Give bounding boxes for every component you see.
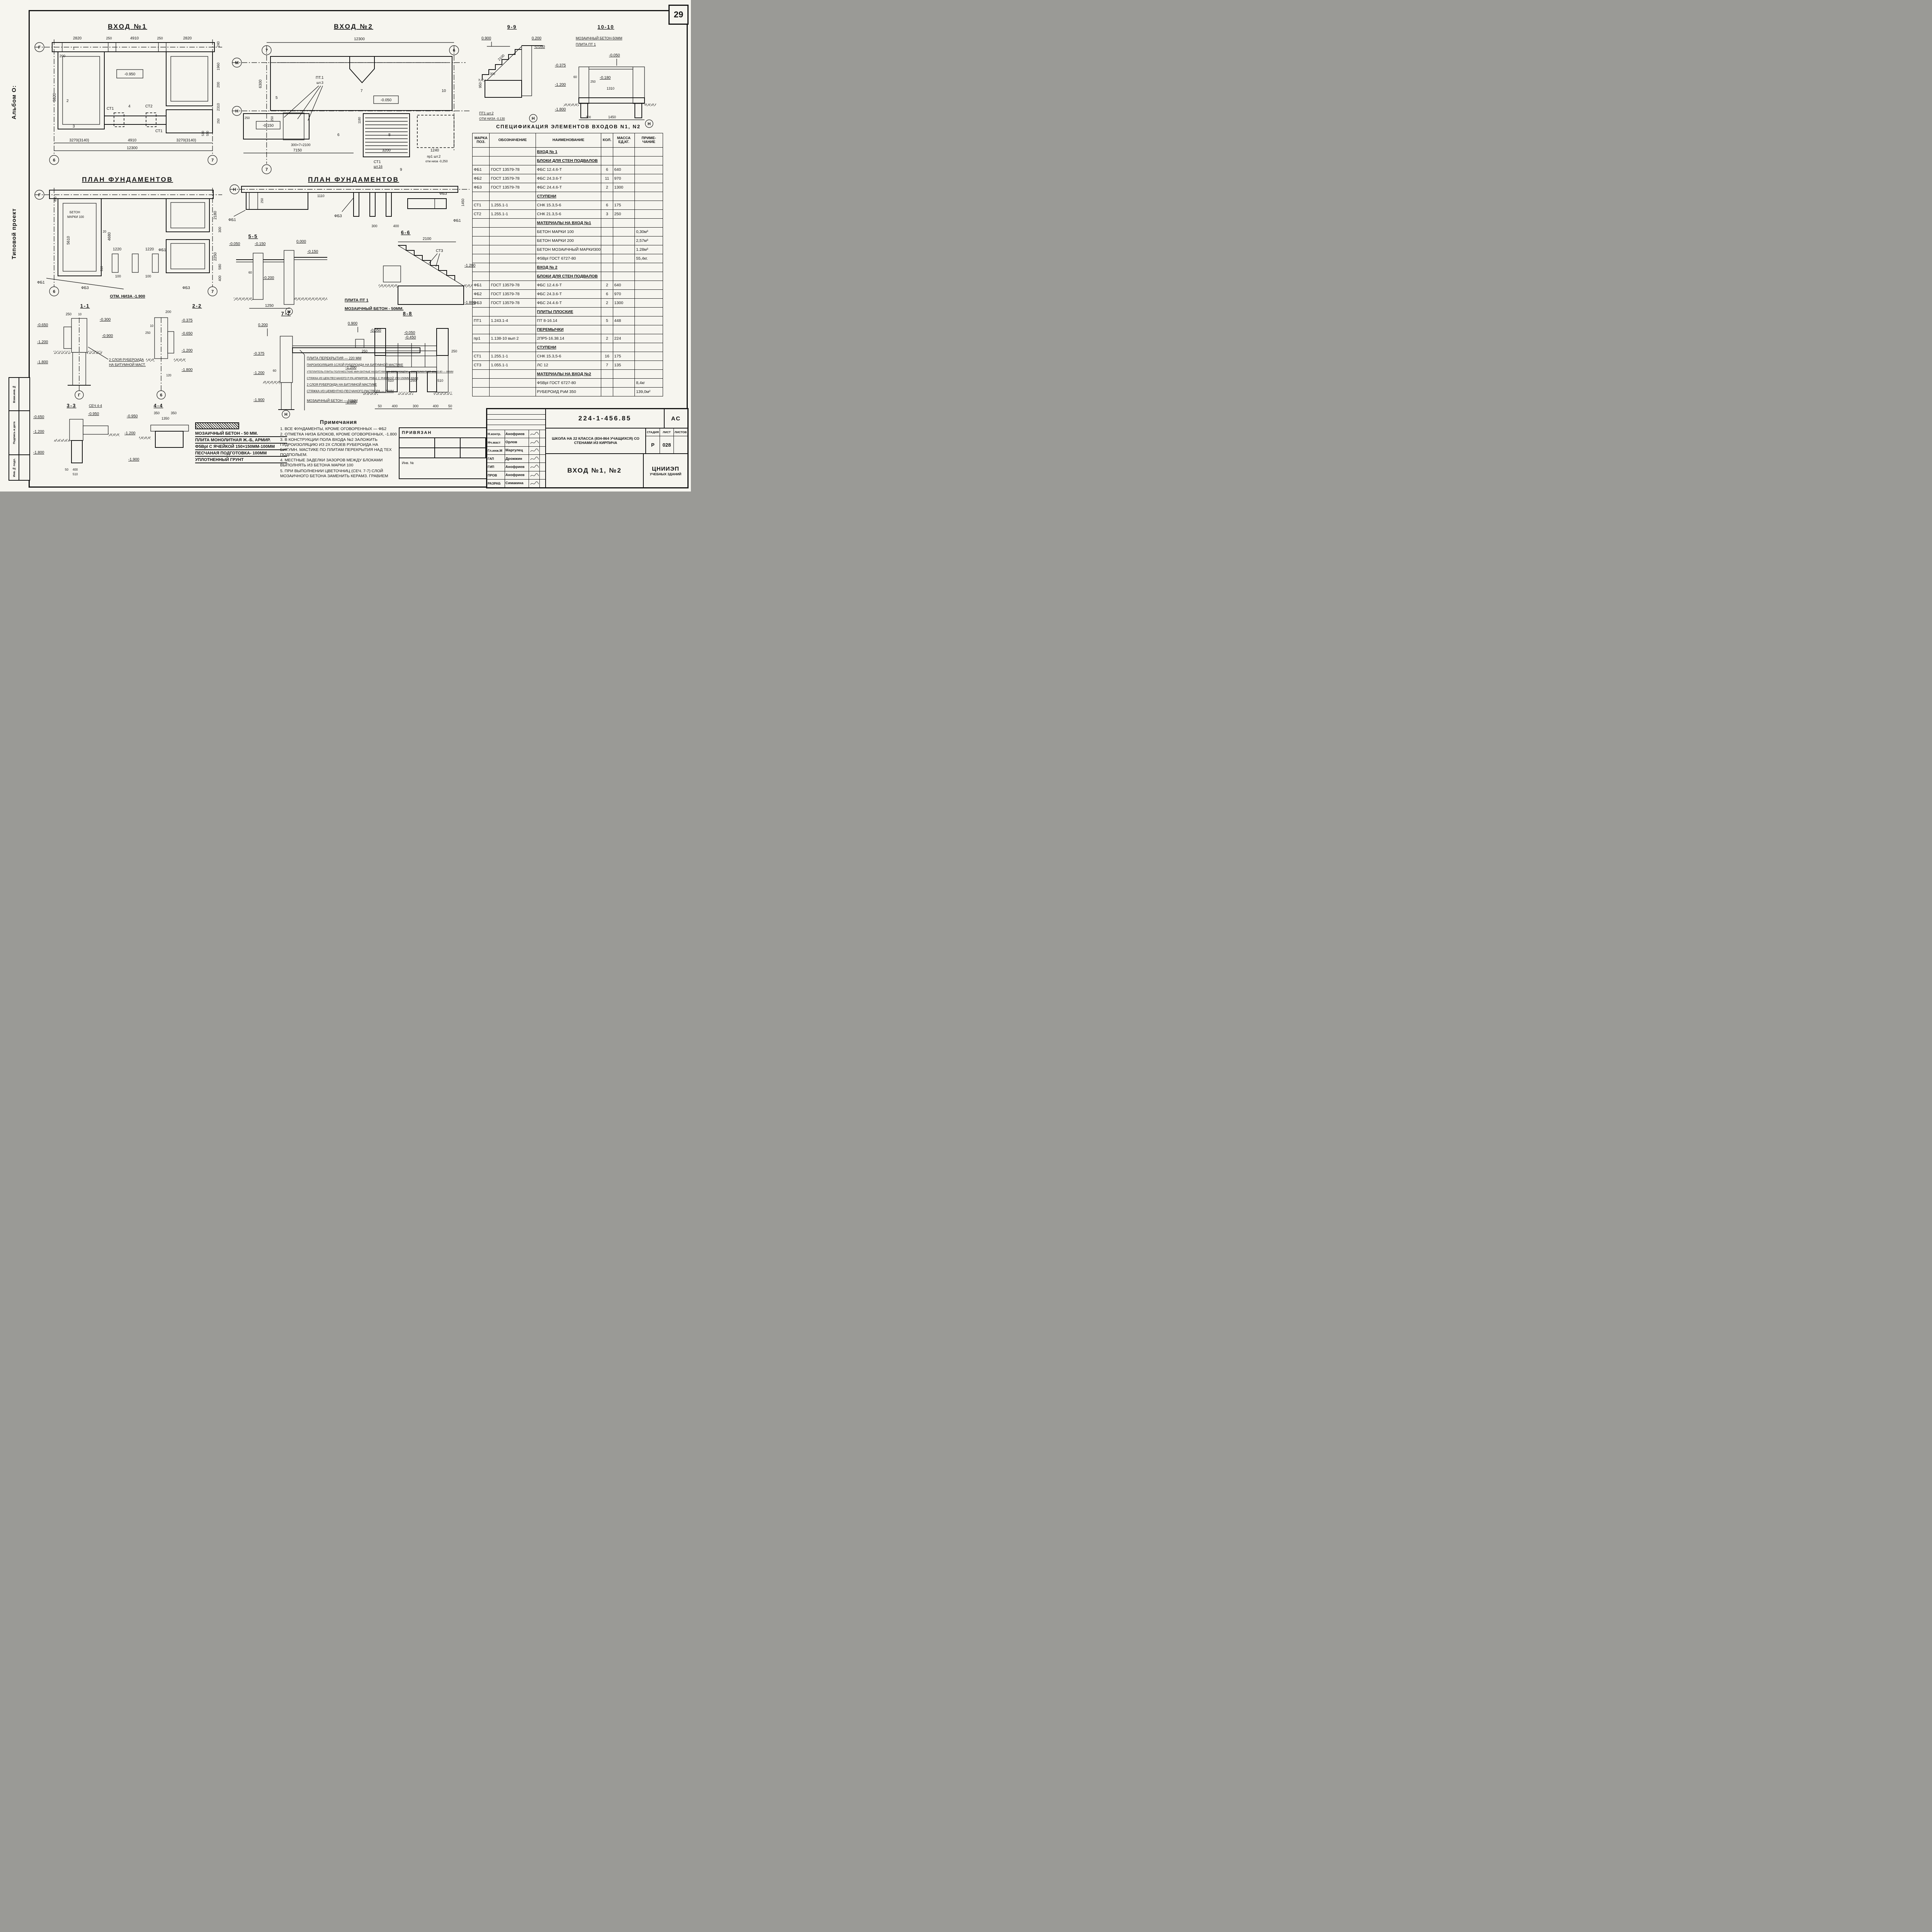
dim-label: 250 [410, 379, 416, 383]
dim-label: 200 [216, 82, 220, 88]
axis-bubble-6: 6 [160, 393, 162, 398]
dim-label: 510 [437, 379, 443, 383]
dim-label: 580 [218, 264, 222, 270]
level-label: -0.050 [404, 331, 415, 335]
level-label: -1.200 [555, 83, 566, 87]
signature-row: ГИПАнофриев [487, 463, 545, 471]
dim-label: 50 [378, 404, 382, 408]
table-row: СТ31.055.1-1ЛС 127135 [473, 361, 663, 370]
dim-label: 400 [433, 404, 439, 408]
sheets-header: ЛИСТОВ [674, 429, 687, 436]
level-label: -1.900 [128, 457, 139, 462]
table-row: МАТЕРИАЛЫ НА ВХОД №2 [473, 370, 663, 379]
dim-label: 300 [586, 116, 591, 119]
dim-label: 6300 [259, 79, 263, 88]
dim-label: 510 [100, 266, 104, 271]
mark-pr1: пр1 шт.2 [427, 155, 440, 158]
level-label: -0.150 [263, 124, 274, 128]
note-item: 5. ПРИ ВЫПОЛНЕНИИ ЦВЕТОЧНИЦ (СЕЧ. 7-7) С… [280, 469, 397, 479]
organization: ЦНИИЭП УЧЕБНЫХ ЗДАНИЙ [644, 454, 687, 487]
panel-title: 5-5 [248, 233, 258, 239]
dim-label: 5320 [53, 93, 57, 102]
level-label: -0.650 [37, 323, 48, 327]
dim-label: 300 [413, 404, 418, 408]
mark-pt1-qty: шт.3 [316, 81, 323, 85]
signature-scribble [529, 430, 540, 438]
stage-value: Р [646, 436, 660, 453]
col-header-mass: МАССА ЕД,КГ. [613, 133, 635, 148]
note-ruberoid-2: НА БИТУМНОЙ МАСТ. [109, 362, 146, 367]
bottom-elevation-note: ОТМ. НИЗА -1.900 [110, 294, 145, 299]
level-label: -1.800 [555, 107, 566, 112]
level-label: -0.950 [127, 414, 138, 418]
dim-label: 120 [166, 374, 172, 377]
signature-row: Н.контр.Анофриев [487, 430, 545, 438]
dim-label: 1310 [607, 87, 614, 90]
section-mark-7: 7 [361, 89, 363, 93]
table-row: ПЕРЕМЫЧКИ [473, 325, 663, 334]
table-row: БЕТОН МАРКИ 1000,30м³ [473, 228, 663, 236]
project-name: ШКОЛА НА 22 КЛАССА (834-864 УЧАЩИХСЯ) СО… [546, 429, 646, 453]
section-6-6-panel: 6-6 2100 СТ3 -1.200 -1.800 ПЛИТА ПТ 1 МО… [340, 228, 473, 315]
table-row: БЛОКИ ДЛЯ СТЕН ПОДВАЛОВ [473, 156, 663, 165]
panel-title-2-2: 2-2 [192, 303, 202, 309]
dim-label: 100 [115, 274, 121, 278]
axis-bubble-6: 6 [53, 158, 55, 163]
dim-label: 1960 [216, 63, 220, 70]
title-block: Н.контр.Анофриев Нч.мастОрлов Гл.инж.ММа… [486, 408, 689, 488]
mark-st1: СТ1 [107, 107, 114, 111]
document-code: АС [665, 409, 687, 428]
signature-scribble [529, 455, 540, 463]
axis-bubble-m: М [235, 61, 238, 65]
dim-label: 250 [157, 36, 163, 40]
section-5-5-panel: 5-5 -0.050 -0.150 0.000 -0.150 -0.200 60… [226, 232, 342, 315]
spec-header-row: МАРКА ПОЗ. ОБОЗНАЧЕНИЕ НАИМЕНОВАНИЕ КОЛ.… [473, 133, 663, 148]
panel-title: 9-9 [507, 24, 517, 30]
mark-st2: СТ2 [145, 104, 153, 109]
panel-title: ПЛАН ФУНДАМЕНТОВ [82, 176, 173, 183]
dim-label: 4910 [130, 36, 139, 41]
spec-title: СПЕЦИФИКАЦИЯ ЭЛЕМЕНТОВ ВХОДОВ N1, N2 [475, 124, 662, 129]
level-label: -0.200 [263, 276, 274, 280]
dim-label: 100 [145, 274, 151, 278]
note-item: 4. МЕСТНЫЕ ЗАДЕЛКИ ЗАЗОРОВ МЕЖДУ БЛОКАМИ… [280, 458, 397, 468]
mark-pt1: ПТ.1 [316, 76, 324, 80]
axis-bubble-7: 7 [211, 289, 214, 294]
table-row: СТУПЕНИ [473, 192, 663, 201]
org-name: ЦНИИЭП [652, 466, 679, 472]
dim-label: 300 [218, 227, 222, 233]
level-label: -1.200 [345, 366, 357, 370]
axis-bubble-7: 7 [265, 48, 268, 53]
table-row: ВХОД № 1 [473, 148, 663, 156]
dim-label: 60 [273, 369, 276, 372]
table-row: РУБЕРОИД РэМ 350139,0м² [473, 388, 663, 396]
level-label: -1.900 [253, 398, 265, 402]
level-label: -1.200 [124, 431, 136, 435]
table-row: БЛОКИ ДЛЯ СТЕН ПОДВАЛОВ [473, 272, 663, 281]
level-label: 0.900 [481, 36, 491, 41]
side-stamp: Взам.инв.№ Подпись и дата Инв.№ подл. [9, 377, 30, 481]
axis-bubble-6: 6 [53, 289, 55, 294]
table-row: Ф5ВрI ГОСТ 6727-808,4кг [473, 379, 663, 388]
dim-label: 2180 [213, 211, 218, 219]
dim-label: 3200 [382, 148, 391, 153]
dim-label: 1110 [317, 194, 325, 198]
dim-label: 10 [150, 324, 153, 328]
panel-title: ПЛАН ФУНДАМЕНТОВ [308, 176, 399, 183]
dim-label: 300 [371, 224, 377, 228]
drawing-sheet: 29 Альбом О: Типовой проект Взам.инв.№ П… [0, 0, 691, 492]
section-mark-10: 10 [442, 89, 446, 93]
mark-fb1: ФБ1 [37, 281, 45, 285]
side-stamp-inv: Инв.№ подл. [12, 458, 16, 477]
level-label: -0.650 [182, 332, 193, 336]
panel-title: ВХОД №2 [334, 23, 373, 30]
level-label: -0.375 [253, 352, 265, 356]
table-row: Ф5ВрI ГОСТ 6727-8055,4кг. [473, 254, 663, 263]
signature-row: Нч.мастОрлов [487, 438, 545, 446]
dim-label: 2100 [497, 53, 505, 61]
legend-row: МОЗАИЧНЫЙ БЕТОН - 50 ММ. [195, 430, 287, 437]
caption-otm-niza: ОТМ НИЗА -0,130 [479, 117, 505, 121]
table-row: ФБ1ГОСТ 13579-78ФБС 12.4.6-Т2640 [473, 281, 663, 290]
axis-bubble-g: Г [78, 393, 81, 398]
level-label: -0.375 [555, 63, 566, 68]
section-mark-5: 5 [276, 96, 278, 100]
dim-label: 50 [448, 404, 452, 408]
sections-3-4-panel: 3-3 СЕЧ 4-4 4-4 -0.650 -1.200 -0.950 -1.… [31, 402, 193, 477]
level-label: -1.200 [33, 430, 44, 434]
dim-label: 4680 [107, 232, 112, 241]
dim-label: 300 [490, 72, 495, 76]
level-label: -1.900 [345, 400, 357, 405]
level-label: 0.900 [348, 321, 357, 326]
dim-label: 400 [392, 404, 398, 408]
mark-st3: СТ3 [436, 249, 443, 253]
mark-st1: СТ1 [374, 160, 381, 164]
signature-scribble [529, 438, 540, 446]
sheet-value: 028 [660, 436, 674, 453]
foundation2-plan-panel: ПЛАН ФУНДАМЕНТОВ Н ФБ1 250 1110 ФБ3 ФБ3 … [226, 175, 473, 233]
level-label: -1.800 [33, 451, 44, 455]
hatch-sample [195, 422, 239, 429]
signature-scribble [529, 463, 540, 471]
caption-plita: ПЛИТА ПТ 1 [576, 43, 596, 46]
privyazan-grid [400, 438, 487, 458]
dim-label: 12300 [127, 146, 138, 150]
axis-bubble-n: Н [532, 116, 535, 121]
document-number: 224-1-456.85 [546, 409, 665, 428]
level-label: -1.200 [253, 371, 265, 375]
sections-1-2-panel: 1-1 2-2 250 10 -0.650 -1.200 -1.800 -0.3… [31, 302, 226, 401]
privyazan-inv-label: Инв. № [400, 458, 487, 468]
mark-fb1: ФБ1 [228, 218, 236, 222]
panel-title: 7-7 [281, 311, 291, 316]
axis-bubble-7: 7 [211, 158, 214, 163]
note-item: 1. ВСЕ ФУНДАМЕНТЫ, КРОМЕ ОГОВОРЕННЫХ — Ф… [280, 427, 397, 432]
table-row: ПТ11.243.1-4ПТ 8-16.145448 [473, 316, 663, 325]
dim-label: 250 [66, 312, 71, 316]
table-row: ВХОД № 2 [473, 263, 663, 272]
section-mark-6: 6 [337, 133, 340, 137]
table-row: БЕТОН МОЗАИЧНЫЙ МАРКИ3001.28м³ [473, 245, 663, 254]
level-label: -1.200 [182, 349, 193, 353]
level-label: -0.050 [381, 98, 392, 102]
level-label: -0.050 [534, 45, 545, 49]
panel-title-4-4: 4-4 [154, 403, 163, 408]
legend-row: Ф5ВрI С ЯЧЕЙКОЙ 150×150ММ-100ММ [195, 444, 287, 450]
section-mark-2: 2 [66, 99, 69, 103]
dim-label: 200 [165, 310, 171, 314]
axis-bubble-n: Н [284, 412, 287, 417]
dim-label: 1350 [162, 417, 169, 420]
dim-label: 400 [73, 468, 78, 471]
page-number: 29 [668, 5, 689, 25]
dim-label: 1240 [430, 148, 439, 153]
signature-scribble [529, 480, 540, 487]
section-mark-9: 9 [400, 168, 402, 172]
level-label: 0.000 [296, 240, 306, 244]
entrance1-plan-panel: ВХОД №1 Г 6 7 -0.950 СТ1 СТ2 СТ1 1 2 3 4… [31, 20, 226, 175]
col-header-pos: МАРКА ПОЗ. [473, 133, 490, 148]
level-label: -0.300 [100, 318, 111, 322]
mark-fb3: ФБ3 [81, 286, 89, 290]
dim-label: 240 [216, 41, 220, 47]
dim-label: 250 [106, 36, 112, 40]
section-mark-3: 3 [73, 124, 75, 129]
dim-label: 2310 [216, 103, 220, 111]
panel-title: ВХОД №1 [108, 23, 147, 30]
mark-st1b: СТ1 [155, 129, 163, 133]
level-label: -1.200 [37, 340, 48, 344]
notes-block: Примечания 1. ВСЕ ФУНДАМЕНТЫ, КРОМЕ ОГОВ… [280, 419, 397, 479]
privyazan-title: ПРИВЯЗАН [400, 428, 487, 438]
level-label: -0.900 [102, 334, 113, 338]
panel-title: 10-10 [597, 24, 614, 30]
legend-row: ПЕСЧАНАЯ ПОДГОТОВКА- 100ММ [195, 450, 287, 457]
level-label: -0.050 [229, 242, 240, 246]
caption-pt1: ПТ1 шт.2 [479, 111, 493, 115]
dim-label: 2820 [73, 36, 82, 41]
org-name-2: УЧЕБНЫХ ЗДАНИЙ [650, 472, 681, 476]
dim-label: 5610 [66, 236, 71, 245]
panel-title: 8-8 [403, 311, 413, 316]
panel-title-sech-4-4: СЕЧ 4-4 [89, 404, 102, 408]
dim-label: 50 [65, 468, 68, 471]
mark-fb3b: ФБ3 [439, 192, 447, 196]
dim-label: 250 [217, 118, 220, 124]
col-header-name: НАИМЕНОВАНИЕ [536, 133, 601, 148]
note-beton2: МАРКИ 100 [67, 215, 84, 219]
axis-bubble-g: Г [38, 193, 41, 197]
dim-label: 1450 [608, 115, 616, 119]
signature-row: РАЗРАБСимакина [487, 480, 545, 487]
dim-label: 1220 [145, 247, 154, 252]
table-row: СТ11.255.1-1СНК 15.3,5-66175 [473, 201, 663, 210]
table-row: ФБ2ГОСТ 13579-78ФБС 24.3.6-Т6970 [473, 290, 663, 299]
axis-bubble-7b: 7 [265, 167, 268, 172]
side-stamp-vzam: Взам.инв.№ [12, 385, 16, 403]
col-header-qty: КОЛ. [601, 133, 613, 148]
table-row: пр11.138-10 вып 22ПР5-16.38.142224 [473, 334, 663, 343]
dim-label: 10 [78, 313, 82, 316]
dim-label: 350 [154, 411, 160, 415]
table-row: СТ11.255.1-1СНК 15.3,5-616175 [473, 352, 663, 361]
dim-label: 60 [248, 271, 252, 274]
level-label: 0.200 [258, 323, 268, 327]
dim-label: 250 [362, 349, 367, 353]
axis-bubble-6: 6 [453, 48, 455, 53]
signature-row: ГАПДрожжин [487, 455, 545, 463]
axis-bubble-g: Г [38, 45, 41, 50]
note-beton: БЕТОН [70, 211, 80, 214]
dim-label: 60 [573, 75, 577, 79]
dim-label: 510 [201, 131, 205, 136]
mark-fb3: ФБ3 [334, 214, 342, 218]
section-8-8-panel: 8-8 0.900 -0.050 -1.200 -1.900 250 250 5… [340, 309, 471, 418]
col-header-ref: ОБОЗНАЧЕНИЕ [490, 133, 536, 148]
privyazan-box: ПРИВЯЗАН Инв. № [399, 427, 488, 479]
note-item: 3. В КОНСТРУКЦИИ ПОЛА ВХОДА №2 ЗАЛОЖИТЬ … [280, 437, 397, 458]
dim-label: 490 [54, 196, 57, 202]
section-mark-1: 1 [73, 46, 75, 51]
axis-bubble-n: Н [233, 187, 236, 192]
caption-plita-pt1: ПЛИТА ПТ 1 [345, 298, 369, 303]
dim-label: 950 [478, 82, 482, 88]
dim-label: 1250 [265, 304, 274, 308]
notes-title: Примечания [280, 419, 397, 426]
dim-label: 510 [73, 473, 78, 476]
level-label: -0.950 [88, 412, 99, 416]
stage-header: СТАДИЯ [646, 429, 660, 436]
section-mark-4: 4 [128, 104, 131, 109]
section-9-9-panel: 9-9 0.900 2100 300 950 0.200 -0.050 ПТ1 … [475, 22, 549, 128]
dim-label: 510 [388, 379, 394, 383]
side-stamp-podpis: Подпись и дата [12, 422, 16, 444]
dim-label: 200 [60, 54, 65, 58]
section-mark-8: 8 [388, 133, 391, 137]
dim-label: 1180 [358, 117, 361, 124]
section-10-10-panel: 10-10 МОЗАИЧНЫЙ БЕТОН-50ММ ПЛИТА ПТ 1 -0… [552, 22, 660, 128]
table-row: СТУПЕНИ [473, 343, 663, 352]
level-label: -0.180 [600, 76, 611, 80]
mark-fb1b: ФБ1 [158, 248, 166, 252]
signature-scribble [529, 471, 540, 479]
margin-album-label: Альбом О: [11, 58, 17, 147]
sheet-header: ЛИСТ [660, 429, 674, 436]
table-row: ФБ2ГОСТ 13579-78ФБС 24.3.6-Т11970 [473, 174, 663, 183]
mark-st1-qty: шт.16 [374, 165, 383, 168]
table-row: ФБ1ГОСТ 13579-78ФБС 12.4.6-Т6640 [473, 165, 663, 174]
signature-row: ПРОВАнофриев [487, 471, 545, 480]
level-label: -0.650 [33, 415, 44, 419]
level-label: -0.050 [609, 53, 620, 58]
mark-fb3b: ФБ3 [182, 286, 190, 290]
dim-label: 250 [245, 116, 250, 120]
dim-label: 7150 [293, 148, 302, 153]
dim-label: 250 [451, 349, 457, 353]
dim-label: 250 [260, 198, 264, 203]
axis-bubble-n: Н [235, 109, 238, 114]
level-label: 0.200 [532, 36, 541, 41]
mark-fb1b: ФБ1 [453, 219, 461, 223]
dim-label: 300×7=2100 [291, 143, 311, 147]
dim-label: 350 [171, 411, 177, 415]
panel-title-1-1: 1-1 [80, 303, 90, 309]
signature-table: Н.контр.Анофриев Нч.мастОрлов Гл.инж.ММа… [487, 409, 546, 487]
foundation1-plan-panel: ПЛАН ФУНДАМЕНТОВ Г 6 7 БЕТОН МАРКИ 100 Ф… [31, 175, 226, 302]
dim-label: 400 [393, 224, 399, 228]
panel-title: 6-6 [401, 230, 411, 235]
table-row: СТ21.255.1-1СНК 21.3,5-63250 [473, 210, 663, 219]
note-item: 2. ОТМЕТКА НИЗА БЛОКОВ, КРОМЕ ОГОВОРЕННЫ… [280, 432, 397, 437]
legend-row: УПЛОТНЕННЫЙ ГРУНТ [195, 457, 287, 463]
dim-label: 12300 [354, 37, 365, 41]
level-label: -0.375 [182, 318, 193, 323]
dim-label: 2250 [213, 252, 218, 261]
dim-label: 1450 [461, 199, 465, 206]
level-label: -0.950 [124, 72, 136, 77]
level-label: -1.800 [37, 360, 48, 364]
spec-table: МАРКА ПОЗ. ОБОЗНАЧЕНИЕ НАИМЕНОВАНИЕ КОЛ.… [472, 133, 663, 396]
level-label: -0.150 [307, 250, 318, 254]
table-row: МАТЕРИАЛЫ НА ВХОД №1 [473, 219, 663, 228]
dim-label: 2820 [183, 36, 192, 41]
dim-label: 2100 [423, 237, 432, 241]
table-row: ПЛИТЫ ПЛОСКИЕ [473, 308, 663, 316]
signature-row: Гл.инж.ММаргулец [487, 447, 545, 455]
col-header-note: ПРИМЕ- ЧАНИЕ [635, 133, 663, 148]
table-row: ФБ3ГОСТ 13579-78ФБС 24.4.6-Т21300 [473, 183, 663, 192]
floor-legend: МОЗАИЧНЫЙ БЕТОН - 50 ММ. ПЛИТА МОНОЛИТНА… [195, 422, 287, 463]
dim-label: 1220 [113, 247, 122, 252]
stage-grid: СТАДИЯ ЛИСТ ЛИСТОВ Р 028 [646, 429, 687, 453]
sheet-title: ВХОД №1, №2 [546, 454, 644, 487]
dim-label: 550 [206, 131, 209, 136]
dim-label: 250 [145, 331, 151, 335]
table-row: БЕТОН МАРКИ 2002,57м³ [473, 236, 663, 245]
dim-label: 4910 [128, 138, 137, 143]
legend-row: ПЛИТА МОНОЛИТНАЯ Ж.-Б, АРМИР. [195, 437, 287, 444]
margin-project-type-label: Типовой проект [11, 182, 17, 286]
sheets-value [674, 436, 687, 453]
level-label: -1.800 [182, 368, 193, 372]
note-ruberoid-1: 2 СЛОЯ РУБЕРОИДА [109, 358, 144, 362]
caption-mosaic: МОЗАИЧНЫЙ БЕТОН-50ММ [576, 36, 622, 40]
panel-title-3-3: 3-3 [67, 403, 77, 408]
level-label: -0.150 [255, 242, 266, 246]
dim-label: 250 [590, 80, 596, 83]
dim-label: 3270(3140) [176, 138, 196, 143]
signature-scribble [529, 447, 540, 454]
mark-pr1-note: отм низа -0,250 [425, 160, 448, 163]
dim-label: 20 [103, 230, 106, 233]
dim-label: 250 [270, 116, 274, 121]
table-row: ФБ3ГОСТ 13579-78ФБС 24.4.6-Т21300 [473, 299, 663, 308]
dim-label: 400 [218, 276, 222, 281]
entrance2-plan-panel: ВХОД №2 12300 7 6 7 М Н -0.150 -0.050 ПТ… [226, 20, 473, 175]
dim-label: 3270(3140) [69, 138, 89, 143]
